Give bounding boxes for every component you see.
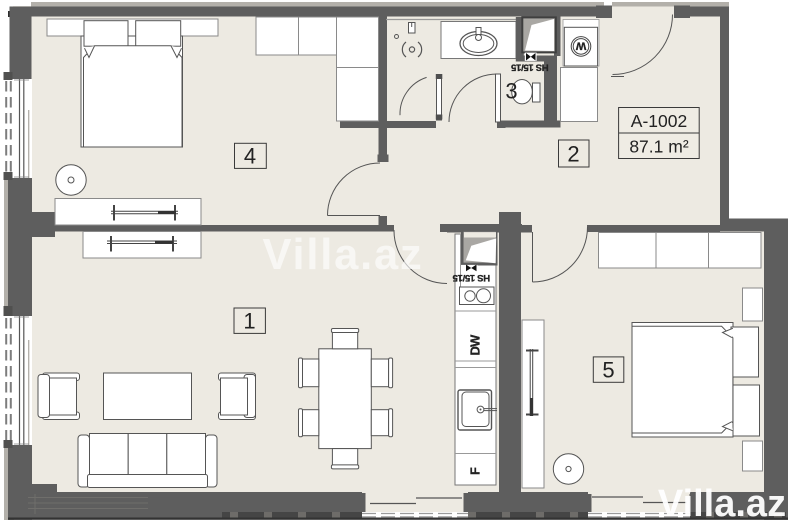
svg-text:HS 15/15: HS 15/15 — [452, 272, 490, 283]
svg-text:5: 5 — [602, 358, 614, 383]
svg-text:Villa.az: Villa.az — [658, 483, 786, 525]
svg-text:DW: DW — [468, 334, 483, 356]
svg-text:87.1 m²: 87.1 m² — [629, 137, 688, 157]
svg-text:2: 2 — [567, 142, 579, 167]
svg-text:HS 15/15: HS 15/15 — [510, 62, 548, 73]
svg-text:3: 3 — [505, 79, 517, 104]
svg-text:F: F — [469, 467, 483, 475]
svg-text:A-1002: A-1002 — [631, 111, 687, 131]
svg-text:4: 4 — [244, 144, 256, 169]
svg-text:1: 1 — [243, 309, 255, 334]
svg-text:Villa.az: Villa.az — [262, 231, 423, 279]
svg-text:W: W — [575, 40, 586, 52]
